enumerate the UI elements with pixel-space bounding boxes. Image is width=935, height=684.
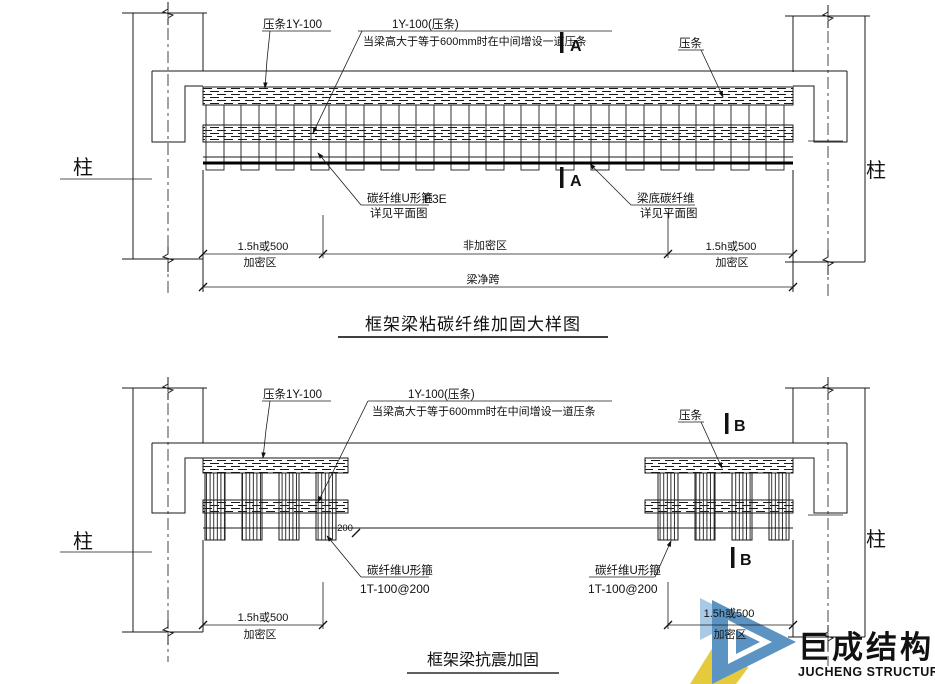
label-soffit-line1: 梁底碳纤维 — [637, 191, 695, 205]
label-strip-right: 压条 — [679, 36, 702, 50]
label-strip-right: 压条 — [679, 408, 702, 422]
dim-zone-right-name: 加密区 — [714, 627, 747, 641]
label-uwrap-left-line1: 碳纤维U形箍 — [367, 563, 433, 577]
label-note-line1: 1Y-100(压条) — [392, 17, 459, 31]
cfrp-top-strip — [203, 87, 793, 105]
detail-b-left-column: 柱 — [60, 377, 207, 662]
dim-mid-zone: 非加密区 — [463, 238, 507, 252]
dim-zone-left: 1.5h或500 — [238, 611, 289, 624]
cfrp-mid-strip — [203, 125, 793, 142]
detail-b-beam: 200 — [152, 443, 847, 540]
label-uwrap-right-line1: 碳纤维U形箍 — [595, 563, 661, 577]
dim-zone-left-name: 加密区 — [244, 627, 277, 641]
label-note-line2: 当梁高大于等于600mm时在中间增设一道压条 — [363, 34, 587, 48]
column-label-left: 柱 — [73, 530, 93, 553]
section-mark-b-top: B — [725, 413, 746, 435]
detail-a-title: 框架梁粘碳纤维加固大样图 — [338, 315, 608, 337]
logo-name-cn: 巨成结构 — [798, 630, 934, 665]
cfrp-top-strip-left — [203, 458, 348, 473]
dim-zone-left-name: 加密区 — [244, 255, 277, 269]
label-note-line1: 1Y-100(压条) — [408, 387, 475, 401]
section-letter: B — [734, 418, 746, 435]
cfrp-top-strip-right — [645, 458, 793, 473]
dim-zone-right-name: 加密区 — [716, 255, 749, 269]
title-detail-a: 框架梁粘碳纤维加固大样图 — [365, 315, 581, 334]
detail-a-beam — [152, 71, 847, 170]
logo-name-en: JUCHENG STRUCTURE — [798, 665, 935, 679]
cfrp-mid-strip-left — [203, 500, 348, 513]
label-note-line2: 当梁高大于等于600mm时在中间增设一道压条 — [372, 404, 596, 418]
label-soffit-line2: 详见平面图 — [640, 206, 698, 220]
dim-span: 梁净跨 — [467, 272, 500, 286]
cfrp-mid-strip-right — [645, 500, 793, 513]
detail-a-dimensions: 1.5h或500 加密区 非加密区 1.5h或500 加密区 梁净跨 — [199, 212, 797, 291]
label-uwrap-right-line2: 1T-100@200 — [588, 582, 658, 596]
label-uwrap-line2: 详见平面图 — [370, 206, 428, 220]
dim-zone-left: 1.5h或500 — [238, 240, 289, 253]
detail-b-title: 框架梁抗震加固 — [407, 651, 559, 673]
section-letter: A — [570, 173, 582, 190]
detail-a: 柱 柱 — [60, 2, 886, 337]
label-strip-left: 压条1Y-100 — [263, 387, 322, 401]
detail-b-right-column: 柱 — [785, 377, 886, 666]
label-strip-left: 压条1Y-100 — [263, 17, 322, 31]
title-detail-b: 框架梁抗震加固 — [427, 651, 539, 669]
section-mark-b-bottom: B — [731, 547, 752, 569]
column-label-left: 柱 — [73, 156, 93, 179]
cad-drawing-canvas: 巨成结构 JUCHENG STRUCTURE 柱 柱 — [0, 0, 935, 684]
detail-a-right-column: 柱 — [785, 5, 886, 298]
detail-a-left-column: 柱 — [60, 2, 207, 296]
dim-zone-right: 1.5h或500 — [704, 607, 755, 620]
dim-wrap-spacing: 200 — [337, 523, 353, 534]
column-label-right: 柱 — [866, 159, 886, 182]
column-label-right: 柱 — [866, 528, 886, 551]
section-letter: B — [740, 552, 752, 569]
label-uwrap-mark: E3E — [424, 192, 447, 206]
dim-zone-right: 1.5h或500 — [706, 240, 757, 253]
label-uwrap-left-line2: 1T-100@200 — [360, 582, 430, 596]
